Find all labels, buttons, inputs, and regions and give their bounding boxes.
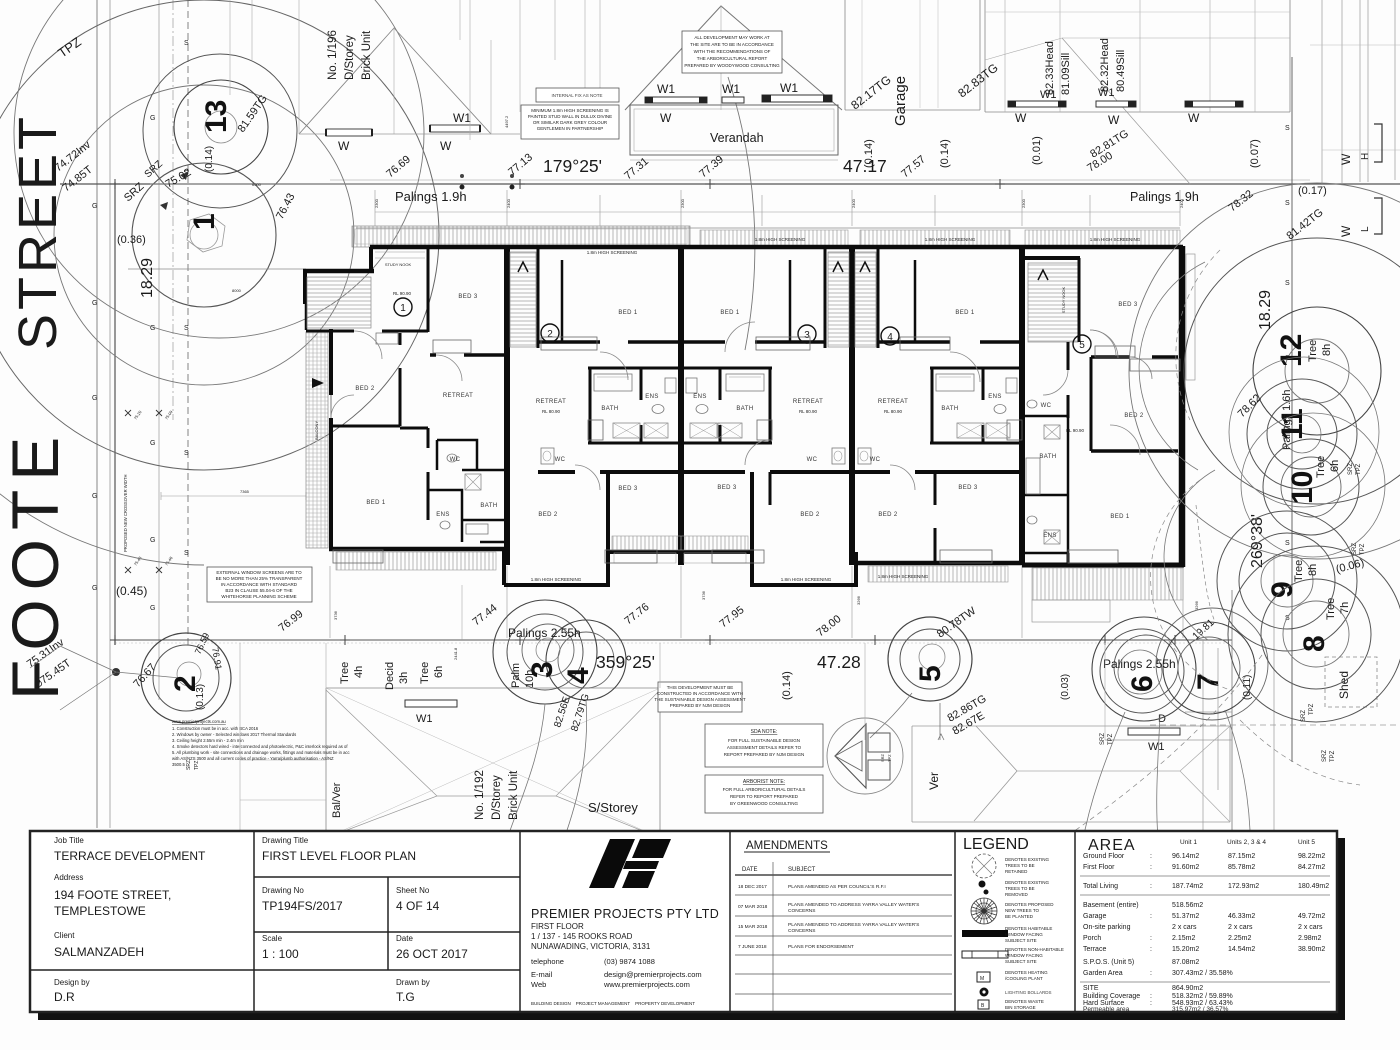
svg-text:WINDOW FACING: WINDOW FACING	[1005, 953, 1043, 958]
svg-text:REMOVED: REMOVED	[1005, 892, 1029, 897]
svg-text:(0.14): (0.14)	[204, 146, 215, 172]
svg-text:G: G	[92, 300, 97, 307]
svg-text:PLANS AMENDED TO ADDRESS YARRA: PLANS AMENDED TO ADDRESS YARRA VALLEY WA…	[788, 922, 919, 928]
svg-text:ENS: ENS	[988, 394, 1002, 400]
svg-text:TPZ: TPZ	[1108, 733, 1114, 745]
svg-text:2 x cars: 2 x cars	[1298, 924, 1323, 931]
svg-text:M: M	[980, 976, 984, 982]
svg-text:RL 90.90: RL 90.90	[393, 291, 412, 296]
svg-text:(0.07): (0.07)	[1249, 139, 1261, 168]
svg-text:GENTLEMEN IN PARTNERSHIP: GENTLEMEN IN PARTNERSHIP	[537, 126, 604, 131]
svg-text:BATH: BATH	[601, 406, 618, 412]
svg-text:TPZ: TPZ	[1356, 463, 1362, 475]
svg-text:1.8m HIGH SCREENING: 1.8m HIGH SCREENING	[1090, 237, 1141, 242]
svg-text:design@premierprojects.com: design@premierprojects.com	[604, 970, 702, 979]
svg-text:SUBJECT: SUBJECT	[788, 867, 816, 873]
svg-text:7h: 7h	[1339, 602, 1351, 614]
svg-text:TPZ: TPZ	[887, 754, 892, 762]
svg-text:G: G	[150, 537, 155, 544]
svg-text:SUBJECT SITE: SUBJECT SITE	[1005, 938, 1037, 943]
svg-text:18.29: 18.29	[139, 258, 156, 298]
svg-text:7: 7	[1192, 673, 1225, 690]
svg-text:www.premierprojects.com: www.premierprojects.com	[603, 980, 690, 989]
svg-text:1: 1	[400, 303, 406, 314]
svg-text:(0.14): (0.14)	[863, 139, 875, 168]
svg-text:NUNAWADING, VICTORIA, 3131: NUNAWADING, VICTORIA, 3131	[531, 942, 651, 951]
svg-text:Tree: Tree	[1325, 598, 1337, 620]
svg-text:G: G	[150, 605, 155, 612]
svg-text:2300: 2300	[680, 198, 685, 208]
svg-text:D.R: D.R	[54, 990, 75, 1004]
svg-text:13: 13	[200, 100, 233, 133]
svg-text:BUILDING DESIGN PROJECT MAN: BUILDING DESIGN PROJECT MANAGEMENT PROPE…	[531, 1001, 695, 1006]
svg-text:15 MAR 2018: 15 MAR 2018	[738, 924, 768, 930]
svg-text:S: S	[184, 325, 189, 332]
svg-text:with AS/NZS 3500 and all curre: with AS/NZS 3500 and all current codes o…	[172, 756, 334, 761]
svg-text:8h: 8h	[1321, 344, 1333, 356]
svg-text:Ground Floor: Ground Floor	[1083, 853, 1125, 860]
svg-text:WITH THE RECOMMENDATIONS OF: WITH THE RECOMMENDATIONS OF	[694, 49, 771, 54]
svg-text:5. All plumbing work - site co: 5. All plumbing work - site connections …	[172, 750, 350, 755]
svg-text:G: G	[150, 440, 155, 447]
svg-text:RL 80.90: RL 80.90	[542, 409, 561, 414]
svg-text:3: 3	[804, 330, 810, 341]
svg-text:B23 IN CLAUSE 55.04-6 OF THE: B23 IN CLAUSE 55.04-6 OF THE	[225, 588, 292, 593]
svg-text:Shed: Shed	[1337, 671, 1351, 699]
svg-text::: :	[1150, 853, 1152, 860]
svg-text:2 x cars: 2 x cars	[1228, 924, 1253, 931]
svg-text:864.90m2: 864.90m2	[1172, 985, 1203, 992]
svg-text:G: G	[150, 115, 155, 122]
svg-text:8h: 8h	[1307, 564, 1319, 576]
svg-text:Garage: Garage	[892, 76, 909, 126]
svg-text:194 FOOTE STREET,: 194 FOOTE STREET,	[54, 888, 171, 902]
svg-text:W: W	[1015, 111, 1027, 125]
svg-text:Design by: Design by	[54, 978, 90, 987]
svg-text:AMENDMENTS: AMENDMENTS	[746, 840, 828, 852]
svg-text::: :	[1150, 946, 1152, 953]
svg-text:S: S	[1285, 280, 1290, 287]
svg-text:PREPARED BY WOODYWOOD CONSULT: PREPARED BY WOODYWOOD CONSULTING	[684, 63, 780, 68]
svg-text:1. Construction must be in acc: 1. Construction must be in acc. with BCA…	[172, 726, 259, 731]
svg-text:RL 80.90: RL 80.90	[884, 409, 903, 414]
svg-text:12: 12	[1275, 334, 1308, 367]
svg-text:telephone: telephone	[531, 957, 564, 966]
svg-text:DENOTES WASTE: DENOTES WASTE	[1005, 999, 1044, 1004]
svg-text:PREPARED BY NJM DESIGN: PREPARED BY NJM DESIGN	[670, 703, 731, 708]
svg-text:Unit 5: Unit 5	[1298, 839, 1315, 846]
svg-text:Decid: Decid	[384, 662, 396, 690]
svg-text:www.premierprojects.com.au: www.premierprojects.com.au	[172, 719, 226, 724]
svg-text:2.15m2: 2.15m2	[1172, 935, 1195, 942]
svg-text:THE ARBORICULTURAL REPORT: THE ARBORICULTURAL REPORT	[697, 56, 768, 61]
svg-text:S: S	[184, 40, 189, 47]
svg-text:BED 3: BED 3	[458, 294, 478, 300]
svg-text:REFER TO REPORT PREPARED: REFER TO REPORT PREPARED	[730, 794, 799, 799]
svg-text:3266: 3266	[856, 595, 861, 605]
svg-text:85.78m2: 85.78m2	[1228, 864, 1255, 871]
svg-text:DENOTES EXISTING: DENOTES EXISTING	[1005, 880, 1050, 885]
svg-text:Total Living: Total Living	[1083, 883, 1118, 890]
svg-text:No. 1/192: No. 1/192	[474, 770, 486, 820]
svg-text:G: G	[92, 585, 97, 592]
svg-text:4: 4	[562, 667, 595, 684]
svg-text:269°38': 269°38'	[1249, 514, 1266, 568]
svg-text:51.37m2: 51.37m2	[1172, 913, 1199, 920]
svg-text:S: S	[1285, 540, 1290, 547]
svg-text:ENS: ENS	[693, 394, 707, 400]
svg-text:First Floor: First Floor	[1083, 864, 1115, 871]
svg-text:STUDY NOOK: STUDY NOOK	[1061, 286, 1066, 313]
svg-text:14.54m2: 14.54m2	[1228, 946, 1255, 953]
svg-text:BED 2: BED 2	[800, 512, 820, 518]
svg-text:BATH: BATH	[480, 503, 497, 509]
svg-text:BED 1: BED 1	[618, 310, 638, 316]
svg-text:6h: 6h	[433, 666, 445, 678]
svg-text:Building Coverage: Building Coverage	[1083, 993, 1140, 1000]
svg-text:5: 5	[914, 665, 947, 682]
svg-text:Unit 1: Unit 1	[1180, 839, 1197, 846]
svg-text:Date: Date	[396, 934, 413, 943]
svg-text:ENS: ENS	[436, 512, 450, 518]
svg-text:PLANS AMENDED TO ADDRESS YARRA: PLANS AMENDED TO ADDRESS YARRA VALLEY WA…	[788, 902, 919, 908]
svg-text:TPZ: TPZ	[194, 761, 200, 770]
svg-text:W: W	[338, 139, 350, 153]
svg-text:ALL DEVELOPMENT MAY WORK AT: ALL DEVELOPMENT MAY WORK AT	[694, 35, 770, 40]
svg-text:W1: W1	[657, 82, 675, 96]
svg-text:Job Title: Job Title	[54, 836, 84, 845]
svg-text:Terrace: Terrace	[1083, 946, 1106, 953]
svg-text:G: G	[92, 493, 97, 500]
svg-text:SRZ: SRZ	[880, 753, 885, 762]
svg-text:S.P.O.S. (Unit 5): S.P.O.S. (Unit 5)	[1083, 959, 1134, 966]
svg-text::: :	[1150, 913, 1152, 920]
svg-text:Scale: Scale	[262, 934, 283, 943]
svg-text:FOR FULL ARBORICULTURAL DETAIL: FOR FULL ARBORICULTURAL DETAILS	[723, 787, 806, 792]
svg-text:AREA: AREA	[1088, 837, 1136, 854]
svg-text:ASSESSMENT DETAILS REFER TO: ASSESSMENT DETAILS REFER TO	[727, 745, 802, 750]
svg-text:RETAINED: RETAINED	[1005, 869, 1028, 874]
svg-text:TREES TO BE: TREES TO BE	[1005, 863, 1035, 868]
svg-text:BED 1: BED 1	[366, 500, 386, 506]
svg-text:Tree: Tree	[1315, 456, 1327, 478]
svg-text:TREES TO BE: TREES TO BE	[1005, 886, 1035, 891]
svg-text:98.22m2: 98.22m2	[1298, 853, 1325, 860]
svg-text:96.14m2: 96.14m2	[1172, 853, 1199, 860]
svg-text:FIRST FLOOR: FIRST FLOOR	[531, 922, 584, 931]
svg-text:7365: 7365	[240, 489, 250, 494]
svg-text:WINDOW FACING: WINDOW FACING	[1005, 932, 1043, 937]
svg-text::: :	[1150, 935, 1152, 942]
svg-text:Porch: Porch	[1083, 935, 1101, 942]
svg-text:BATH: BATH	[941, 406, 958, 412]
svg-text:BATH: BATH	[736, 406, 753, 412]
svg-text:On-site parking: On-site parking	[1083, 924, 1131, 931]
svg-text:CONCERNS: CONCERNS	[788, 928, 815, 934]
svg-text:2400: 2400	[506, 198, 511, 208]
svg-text:BALCONY: BALCONY	[314, 421, 319, 440]
svg-text:(0.17): (0.17)	[1298, 185, 1327, 197]
svg-text:WC: WC	[807, 457, 818, 463]
svg-text:Palings 1.9h: Palings 1.9h	[1130, 190, 1199, 204]
svg-text:RL 80.90: RL 80.90	[799, 409, 818, 414]
svg-text:6000: 6000	[252, 182, 262, 187]
svg-text:BED 3: BED 3	[958, 485, 978, 491]
svg-text:DENOTES HEATING: DENOTES HEATING	[1005, 970, 1048, 975]
svg-text:3736: 3736	[701, 590, 706, 600]
svg-text:DATE: DATE	[742, 867, 758, 873]
svg-text:46.33m2: 46.33m2	[1228, 913, 1255, 920]
svg-text:2.25m2: 2.25m2	[1228, 935, 1251, 942]
svg-text:THE SITE ARE TO BE IN ACCORDAN: THE SITE ARE TO BE IN ACCORDANCE	[690, 42, 774, 47]
svg-text:W: W	[660, 111, 672, 125]
svg-text:T.G: T.G	[396, 990, 415, 1004]
svg-text:Sheet No: Sheet No	[396, 886, 430, 895]
svg-text:DENOTES HABITABLE: DENOTES HABITABLE	[1005, 926, 1052, 931]
svg-text:INTERNAL FIX AS NOTE: INTERNAL FIX AS NOTE	[551, 93, 602, 98]
svg-text:LIGHTING BOLLARDS: LIGHTING BOLLARDS	[1005, 990, 1052, 995]
svg-text:No. 1/196: No. 1/196	[327, 30, 339, 80]
svg-text:BED 3: BED 3	[618, 486, 638, 492]
svg-text:1.8m HIGH SCREENING: 1.8m HIGH SCREENING	[755, 237, 806, 242]
svg-text:Brick Unit: Brick Unit	[361, 30, 373, 80]
svg-text:179°25': 179°25'	[543, 156, 602, 176]
svg-text:3h: 3h	[398, 672, 410, 684]
svg-text:07 MAR 2018: 07 MAR 2018	[738, 904, 768, 910]
svg-text:Ver: Ver	[927, 772, 941, 790]
svg-text:(0.45): (0.45)	[116, 584, 147, 598]
svg-text:THIS DEVELOPMENT MUST BE: THIS DEVELOPMENT MUST BE	[667, 685, 734, 690]
svg-text:8: 8	[1298, 635, 1331, 652]
svg-text:CONSTRUCTED IN ACCORDANCE WITH: CONSTRUCTED IN ACCORDANCE WITH	[657, 691, 743, 696]
svg-text:W1: W1	[722, 82, 740, 96]
svg-text:BED 1: BED 1	[955, 310, 975, 316]
svg-text:S: S	[184, 450, 189, 457]
svg-text:S/Storey: S/Storey	[588, 800, 638, 815]
svg-text:Palings 2.55h: Palings 2.55h	[1103, 657, 1176, 671]
svg-text:BED 1: BED 1	[1110, 514, 1130, 520]
svg-text:Drawing No: Drawing No	[262, 886, 304, 895]
svg-text:4. Smoke detectors hard wired: 4. Smoke detectors hard wired - intercon…	[172, 744, 348, 749]
svg-text:5: 5	[1079, 340, 1085, 351]
svg-text:BED 2: BED 2	[355, 386, 375, 392]
svg-text:S: S	[1285, 200, 1290, 207]
svg-text:STREET: STREET	[8, 113, 68, 350]
svg-text:RETREAT: RETREAT	[793, 399, 823, 405]
svg-text:TERRACE DEVELOPMENT: TERRACE DEVELOPMENT	[54, 849, 206, 863]
svg-text:4 OF 14: 4 OF 14	[396, 899, 440, 913]
svg-text:L: L	[1360, 226, 1371, 232]
svg-text:RETREAT: RETREAT	[443, 393, 473, 399]
svg-text:SITE: SITE	[1083, 985, 1099, 992]
svg-text:315.97m2 / 36.57%: 315.97m2 / 36.57%	[1172, 1006, 1229, 1013]
svg-text:D/Storey: D/Storey	[491, 775, 503, 820]
svg-text:80.49Sill: 80.49Sill	[1115, 50, 1127, 92]
svg-text:87.08m2: 87.08m2	[1172, 959, 1199, 966]
svg-text:FIRST LEVEL FLOOR PLAN: FIRST LEVEL FLOOR PLAN	[262, 849, 416, 863]
svg-text:BED 2: BED 2	[878, 512, 898, 518]
svg-text:S: S	[184, 550, 189, 557]
svg-text:W1: W1	[453, 111, 471, 125]
svg-text:Drawing Title: Drawing Title	[262, 836, 309, 845]
svg-text:Tree: Tree	[1293, 560, 1305, 582]
svg-text:SALMANZADEH: SALMANZADEH	[54, 945, 144, 959]
svg-text:SUBJECT SITE: SUBJECT SITE	[1005, 959, 1037, 964]
svg-text:SRZ: SRZ	[1348, 463, 1354, 475]
svg-text:Palings 1.9h: Palings 1.9h	[395, 189, 467, 204]
svg-text:ARBORIST NOTE:: ARBORIST NOTE:	[743, 779, 785, 785]
svg-text:REPORT PREPARED BY NJM DESIGN: REPORT PREPARED BY NJM DESIGN	[724, 752, 804, 757]
svg-text:W: W	[1108, 113, 1120, 127]
svg-text:BED 3: BED 3	[717, 485, 737, 491]
svg-text:8000: 8000	[232, 288, 242, 293]
svg-text:Units 2, 3 & 4: Units 2, 3 & 4	[1227, 839, 1266, 846]
svg-text:BED 1: BED 1	[720, 310, 740, 316]
svg-text:84.27m2: 84.27m2	[1298, 864, 1325, 871]
svg-text:15.20m2: 15.20m2	[1172, 946, 1199, 953]
svg-text:W: W	[440, 139, 452, 153]
svg-text:DENOTES EXISTING: DENOTES EXISTING	[1005, 857, 1050, 862]
svg-text:Client: Client	[54, 931, 75, 940]
svg-text:E-mail: E-mail	[531, 970, 553, 979]
svg-text:1 : 100: 1 : 100	[262, 947, 299, 961]
svg-text:1.8m HIGH SCREENING: 1.8m HIGH SCREENING	[587, 250, 638, 255]
svg-text:Address: Address	[54, 873, 83, 882]
svg-text:(0.14): (0.14)	[781, 671, 793, 700]
svg-text::: :	[1150, 883, 1152, 890]
svg-text:(03) 9874 1088: (03) 9874 1088	[604, 957, 655, 966]
svg-text:Web: Web	[531, 980, 546, 989]
svg-text:Drawn by: Drawn by	[396, 978, 430, 987]
svg-text:82.32Head: 82.32Head	[1099, 38, 1111, 92]
svg-text:1.8m HIGH SCREENING: 1.8m HIGH SCREENING	[878, 574, 929, 579]
svg-text:(0.03): (0.03)	[1060, 674, 1071, 700]
svg-text:ENS: ENS	[645, 394, 659, 400]
svg-text:6h: 6h	[1329, 460, 1341, 472]
svg-text:WC: WC	[555, 457, 566, 463]
svg-text:W1: W1	[416, 713, 433, 725]
svg-text:Palm: Palm	[510, 663, 522, 688]
svg-text:WHITEHORSE PLANNING SCHEME: WHITEHORSE PLANNING SCHEME	[221, 594, 296, 599]
svg-text:BIN STORAGE: BIN STORAGE	[1005, 1005, 1036, 1010]
svg-text:81.09Sill: 81.09Sill	[1060, 53, 1072, 95]
svg-text:PREMIER PROJECTS PTY LTD: PREMIER PROJECTS PTY LTD	[531, 907, 719, 921]
svg-text:Palings 2.55h: Palings 2.55h	[508, 626, 581, 640]
svg-text:2441.8: 2441.8	[453, 647, 458, 660]
svg-text:Verandah: Verandah	[710, 131, 764, 145]
svg-text:1.8m HIGH SCREENING: 1.8m HIGH SCREENING	[781, 577, 832, 582]
svg-text:/COOLING PLANT: /COOLING PLANT	[1005, 976, 1043, 981]
svg-text:WC: WC	[1041, 403, 1052, 409]
svg-text:SDA NOTE:: SDA NOTE:	[751, 729, 778, 735]
svg-text:91.60m2: 91.60m2	[1172, 864, 1199, 871]
svg-text:26 OCT 2017: 26 OCT 2017	[396, 947, 468, 961]
svg-text:2 x cars: 2 x cars	[1172, 924, 1197, 931]
svg-text:187.74m2: 187.74m2	[1172, 883, 1203, 890]
svg-text:49.72m2: 49.72m2	[1298, 913, 1325, 920]
svg-text:Permeable area: Permeable area	[1083, 1006, 1130, 1013]
svg-text:6: 6	[1126, 675, 1159, 692]
svg-text:SRZ: SRZ	[1301, 710, 1307, 722]
svg-text:W: W	[1339, 225, 1353, 237]
svg-text:4497.2: 4497.2	[504, 115, 509, 128]
svg-text:4h: 4h	[353, 666, 365, 678]
svg-text:RL 90.90: RL 90.90	[1066, 428, 1085, 433]
svg-text:PAINTED STUD WALL IN DULUX DIV: PAINTED STUD WALL IN DULUX DIVINE	[528, 114, 612, 119]
svg-text:38.90m2: 38.90m2	[1298, 946, 1325, 953]
svg-text:PROPOSED NEW CROSSOVER WIDTH: PROPOSED NEW CROSSOVER WIDTH	[123, 475, 128, 552]
svg-text:2300: 2300	[1021, 198, 1026, 208]
svg-text:PLANS FOR ENDORSEMENT: PLANS FOR ENDORSEMENT	[788, 944, 854, 950]
svg-text:FOR FULL SUSTAINABLE DESIGN: FOR FULL SUSTAINABLE DESIGN	[728, 738, 800, 743]
svg-text:3266: 3266	[1194, 600, 1199, 610]
svg-text:SRZ: SRZ	[1352, 543, 1358, 555]
svg-text:NEW TREES TO: NEW TREES TO	[1005, 908, 1040, 913]
svg-text:Tree: Tree	[339, 662, 351, 684]
svg-text:172.93m2: 172.93m2	[1228, 883, 1259, 890]
svg-text:RETREAT: RETREAT	[536, 399, 566, 405]
svg-text:H: H	[1360, 153, 1371, 160]
svg-text:3500.5: 3500.5	[172, 762, 185, 767]
svg-text::: :	[1150, 864, 1152, 871]
svg-text:Bal/Ver: Bal/Ver	[331, 782, 343, 818]
svg-text:TPZ: TPZ	[1330, 750, 1336, 762]
svg-text:PLANS AMENDED AS PER COUNCIL'S: PLANS AMENDED AS PER COUNCIL'S R.F.I	[788, 884, 886, 890]
svg-text:Basement (entire): Basement (entire)	[1083, 902, 1139, 909]
svg-text:WC: WC	[450, 457, 461, 463]
svg-text:BED 2: BED 2	[538, 512, 558, 518]
svg-text:Brick Unit: Brick Unit	[508, 770, 520, 820]
svg-text:(0.14): (0.14)	[939, 139, 951, 168]
svg-text:307.43m2 / 35.58%: 307.43m2 / 35.58%	[1172, 970, 1233, 977]
svg-text:Garage: Garage	[1083, 913, 1106, 920]
svg-text:IN ACCORDANCE WITH STANDARD: IN ACCORDANCE WITH STANDARD	[221, 582, 298, 587]
svg-text:(0.36): (0.36)	[117, 234, 146, 246]
svg-text:518.56m2: 518.56m2	[1172, 902, 1203, 909]
svg-text:(0.01): (0.01)	[1031, 136, 1043, 165]
svg-text:Garden Area: Garden Area	[1083, 970, 1123, 977]
svg-text:SRZ: SRZ	[186, 760, 192, 770]
svg-text:18.29: 18.29	[1257, 290, 1274, 330]
svg-text:EXTERNAL WINDOW SCREENS ARE TO: EXTERNAL WINDOW SCREENS ARE TO	[216, 570, 302, 575]
svg-text:1 / 137 - 145 ROOKS ROAD: 1 / 137 - 145 ROOKS ROAD	[531, 932, 633, 941]
svg-text:Tree: Tree	[419, 662, 431, 684]
svg-text:DENOTES PROPOSED: DENOTES PROPOSED	[1005, 902, 1054, 907]
svg-text:2.98m2: 2.98m2	[1298, 935, 1321, 942]
svg-text:BATH: BATH	[1039, 454, 1056, 460]
svg-text:518.32m2 / 59.89%: 518.32m2 / 59.89%	[1172, 993, 1233, 1000]
svg-text:TPZ: TPZ	[1309, 703, 1315, 715]
svg-text:18 DEC 2017: 18 DEC 2017	[738, 884, 767, 890]
svg-text:47.28: 47.28	[817, 652, 861, 672]
svg-text::: :	[1150, 1000, 1152, 1007]
svg-text:STUDY NOOK: STUDY NOOK	[385, 262, 412, 267]
svg-text:W1: W1	[1148, 741, 1165, 753]
svg-text:TP194FS/2017: TP194FS/2017	[262, 899, 343, 913]
svg-text:Tree: Tree	[1307, 340, 1319, 362]
svg-text:BE NO MORE THAN 25% TRANSPAREN: BE NO MORE THAN 25% TRANSPARENT	[216, 576, 303, 581]
svg-text:(0.13): (0.13)	[195, 684, 206, 710]
svg-text:BY GREENWOOD CONSULTING: BY GREENWOOD CONSULTING	[730, 801, 799, 806]
svg-text:ENS: ENS	[1043, 533, 1057, 539]
svg-text:1: 1	[188, 213, 221, 230]
svg-text:BED 3: BED 3	[1118, 302, 1138, 308]
svg-text:THE SUSTAINABLE DESIGN ASSESSM: THE SUSTAINABLE DESIGN ASSESSMENT	[654, 697, 745, 702]
svg-text::: :	[1150, 970, 1152, 977]
svg-text::: :	[1150, 993, 1152, 1000]
svg-text:359°25': 359°25'	[596, 652, 655, 672]
svg-text:OR SIMILAR DARK GREY COLOUR: OR SIMILAR DARK GREY COLOUR	[533, 120, 608, 125]
